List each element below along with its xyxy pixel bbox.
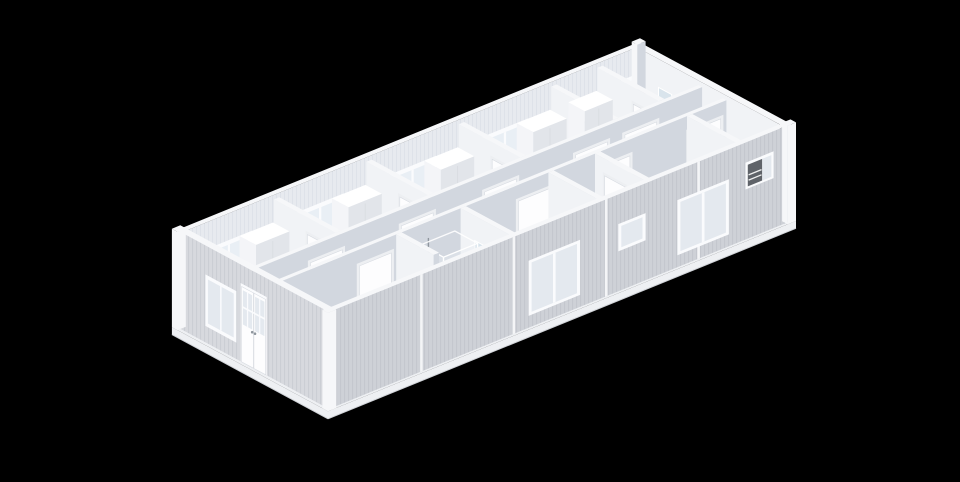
front-window-1-mullion [553, 253, 556, 303]
render-canvas [0, 0, 960, 482]
module-seam-2 [513, 236, 516, 334]
corner-post-e-w [782, 123, 788, 225]
front-window-2-mullion [702, 192, 705, 242]
entrance-handle-right [254, 332, 257, 335]
module-seam-1 [420, 274, 423, 372]
corner-post-w-w [172, 229, 178, 330]
isometric-floorplan-svg [0, 0, 960, 482]
entrance-muntin-v2 [259, 299, 260, 334]
corner-post-w-s [178, 228, 186, 330]
entrance-handle-left [251, 331, 254, 334]
corner-post-s-s [328, 310, 336, 412]
corner-post-e-s [788, 122, 796, 224]
corner-post-s-w [322, 310, 328, 411]
module-seam-3 [605, 199, 608, 297]
end-window-mullion [220, 286, 222, 331]
ac-window-glass [762, 155, 771, 180]
entrance-muntin-v1 [247, 292, 248, 327]
